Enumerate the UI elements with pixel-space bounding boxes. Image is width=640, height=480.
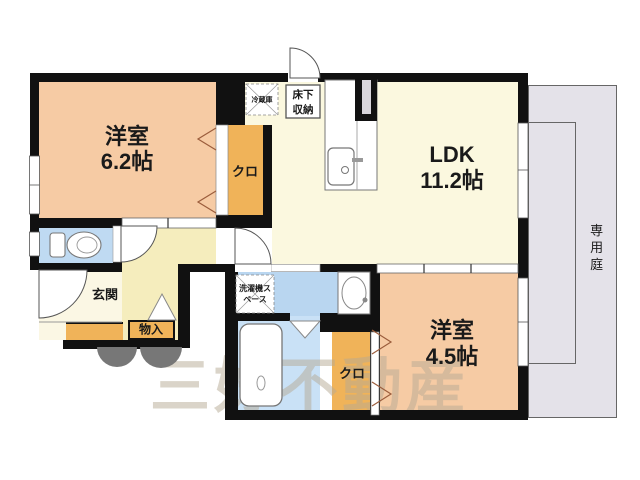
underfloor-storage-label: 床下収納 <box>286 85 320 118</box>
refrigerator-label: 冷蔵庫 <box>246 84 278 115</box>
kitchen-sink-icon <box>328 148 354 185</box>
washbasin-icon <box>338 272 370 314</box>
plan-linework-layer <box>0 0 640 480</box>
bedroom2-size-label: 4.5帖 <box>426 345 479 369</box>
entrance-label: 玄関 <box>92 288 118 302</box>
storage-folding-door <box>148 294 176 320</box>
bedroom1-size-label: 6.2帖 <box>101 150 154 174</box>
front-door-arc <box>39 270 87 318</box>
closet2-label: クロ <box>339 367 365 381</box>
bedroom2-label: 洋室 <box>430 319 474 343</box>
bedroom1-label: 洋室 <box>105 125 149 149</box>
floorplan-canvas: 三好不動産 <box>0 0 640 480</box>
washroom-door-arc <box>235 228 271 264</box>
garden-label: 専用庭 <box>588 224 602 275</box>
washer-space-label: 洗濯機スペース <box>236 275 274 313</box>
kitchen-counter <box>325 73 377 190</box>
bathtub-icon <box>240 324 282 406</box>
faucet-icon <box>352 158 363 162</box>
bathroom-folding-door <box>290 321 320 338</box>
ldk-label: LDK <box>429 143 474 167</box>
ldk-size-label: 11.2帖 <box>420 169 484 193</box>
toilet-icon <box>50 232 101 258</box>
toilet-door-arc <box>121 226 157 262</box>
entrance-porch-steps <box>97 347 182 368</box>
storage-label: 物入 <box>139 323 163 336</box>
closet1-label: クロ <box>232 165 258 179</box>
back-door-arc <box>290 48 320 78</box>
